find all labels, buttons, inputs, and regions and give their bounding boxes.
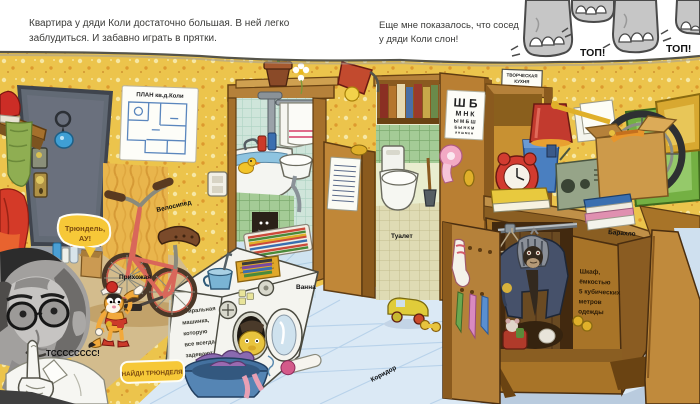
svg-text:Еще мне показалось, что сосед: Еще мне показалось, что сосед [379,20,519,31]
svg-text:у дяди Коли слон!: у дяди Коли слон! [379,34,458,45]
svg-text:Ш Б: Ш Б [453,95,478,110]
svg-text:5 кубических: 5 кубических [579,287,621,296]
svg-text:КУХНЯ: КУХНЯ [514,79,529,85]
svg-text:ТОП!: ТОП! [580,47,605,59]
svg-text:Квартира у дяди Коли достаточн: Квартира у дяди Коли достаточно большая.… [29,17,290,29]
svg-text:Туалет: Туалет [391,233,413,240]
svg-text:Трюндель,: Трюндель, [65,224,105,233]
svg-text:метров: метров [578,298,601,306]
svg-text:ТОП!: ТОП! [666,43,691,55]
svg-text:ТСССССССС!: ТСССССССС! [46,349,100,358]
svg-text:одежды: одежды [578,308,604,316]
svg-text:АУ!: АУ! [79,234,91,243]
svg-text:М Н К: М Н К [455,111,475,119]
svg-text:Ванна: Ванна [296,284,316,291]
svg-text:Шкаф,: Шкаф, [580,268,601,276]
svg-text:Прихожая: Прихожая [119,274,151,281]
svg-text:заблудиться. И забавно играть: заблудиться. И забавно играть в прятки. [29,32,217,44]
svg-text:ёмкостью: ёмкостью [579,278,611,286]
